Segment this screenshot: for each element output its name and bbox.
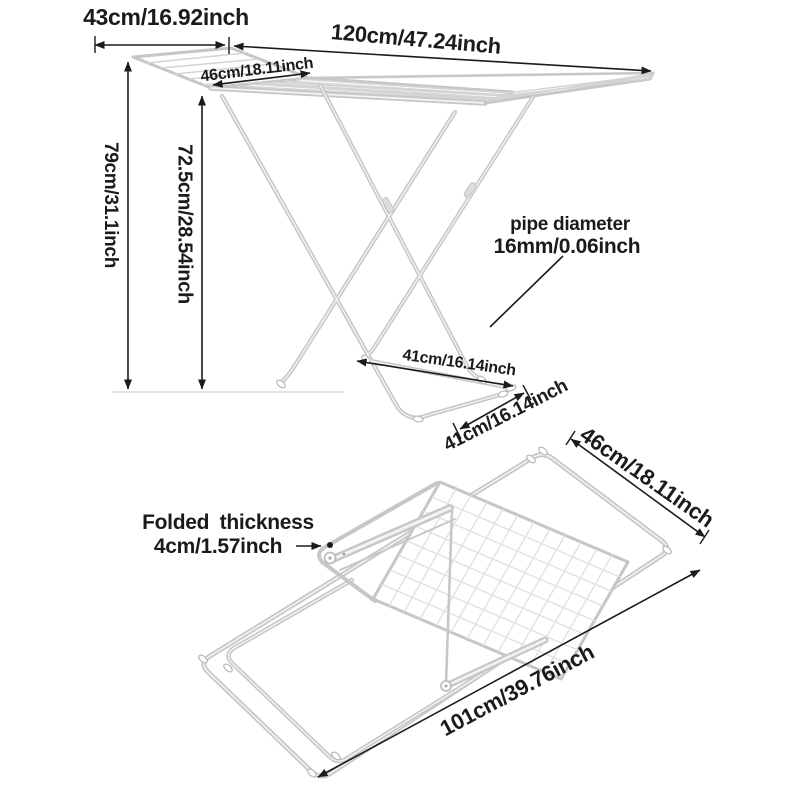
drying-rack-dimension-diagram: 43cm/16.92inch 120cm/47.24inch 46cm/18.1…	[0, 0, 800, 800]
folded-rack-drawing	[197, 446, 672, 779]
label-total-height: 79cm/31.1inch	[100, 142, 120, 268]
hinge-screw-dot	[343, 553, 346, 556]
label-pipe-diameter-line2: 16mm/0.06inch	[494, 236, 641, 258]
label-folded-thickness-line2: 4cm/1.57inch	[154, 536, 282, 558]
hinge-left-pin	[328, 556, 331, 559]
label-wing-width: 43cm/16.92inch	[83, 5, 249, 29]
right-wing-back-bar	[309, 73, 653, 78]
label-pipe-diameter-line1: pipe diameter	[510, 215, 630, 235]
pipe-leader-line	[490, 256, 563, 327]
right-wing-rods	[488, 74, 653, 101]
diagram-linework	[0, 0, 800, 800]
label-folded-thickness-line1: Folded thickness	[142, 512, 314, 534]
thickness-dot	[327, 542, 333, 548]
label-frame-height: 72.5cm/28.54inch	[174, 144, 195, 304]
hinge-bottom-pin	[445, 685, 448, 688]
